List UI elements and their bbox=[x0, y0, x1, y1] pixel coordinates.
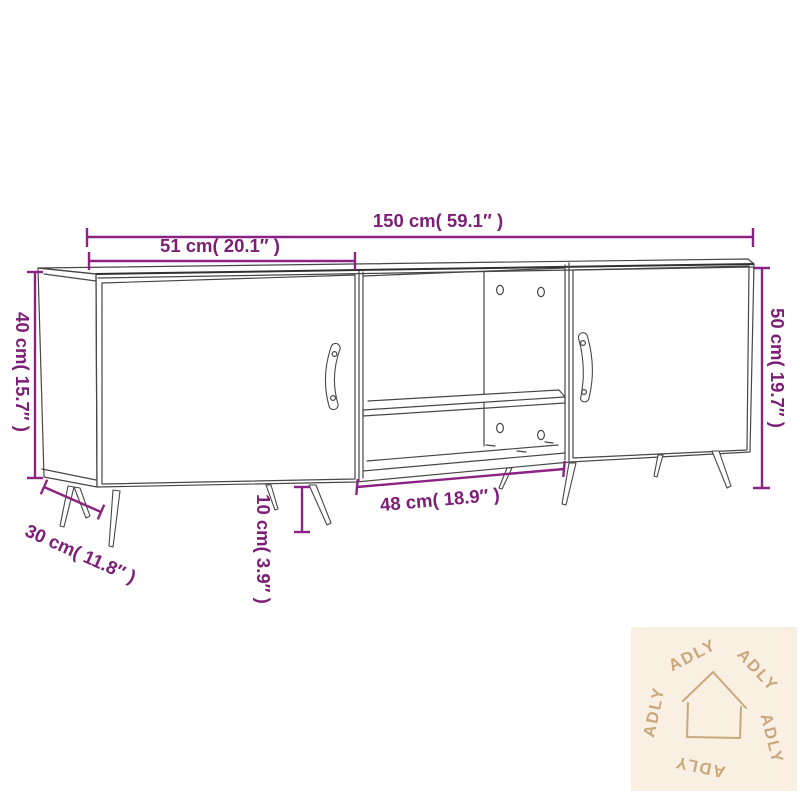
brand-watermark: ADLY ADLY ADLY ADLY ADLY bbox=[631, 627, 797, 791]
leg bbox=[60, 486, 74, 527]
dimension-leg-height-label: 10 cm( 3.9″ ) bbox=[253, 494, 274, 604]
compartment-floor bbox=[363, 445, 565, 471]
left-door-handle bbox=[325, 343, 340, 409]
cabinet-left-side-panel bbox=[38, 268, 97, 487]
left-side-top-inner-line bbox=[44, 274, 96, 281]
right-door bbox=[573, 266, 749, 458]
cabinet-front-outline bbox=[96, 264, 754, 487]
dimension-left-width-label: 51 cm( 20.1″ ) bbox=[160, 235, 280, 256]
dimension-right-height-label: 50 cm( 19.7″ ) bbox=[767, 308, 788, 428]
dimension-left-height: 40 cm( 15.7″ ) bbox=[12, 272, 43, 478]
leg bbox=[499, 468, 512, 489]
right-door-handle bbox=[578, 333, 592, 402]
dimension-depth-label: 30 cm( 11.8″ ) bbox=[22, 520, 139, 588]
dimension-total-width-label: 150 cm( 59.1″ ) bbox=[373, 210, 503, 231]
dimension-left-height-label: 40 cm( 15.7″ ) bbox=[12, 312, 33, 432]
product-dimension-diagram: 150 cm( 59.1″ ) 51 cm( 20.1″ ) 40 cm( 15… bbox=[0, 0, 800, 800]
dimension-middle-width-label: 48 cm( 18.9″ ) bbox=[379, 484, 500, 515]
leg bbox=[712, 451, 731, 488]
open-compartment-frame bbox=[363, 265, 565, 478]
dimension-leg-height: 10 cm( 3.9″ ) bbox=[253, 487, 310, 604]
dimension-right-height: 50 cm( 19.7″ ) bbox=[753, 268, 788, 488]
back-panel-holes bbox=[497, 285, 545, 439]
leg bbox=[654, 455, 663, 477]
leg bbox=[109, 490, 120, 547]
leg bbox=[309, 485, 331, 525]
left-door bbox=[102, 275, 355, 484]
diagram-canvas: 150 cm( 59.1″ ) 51 cm( 20.1″ ) 40 cm( 15… bbox=[0, 0, 800, 800]
